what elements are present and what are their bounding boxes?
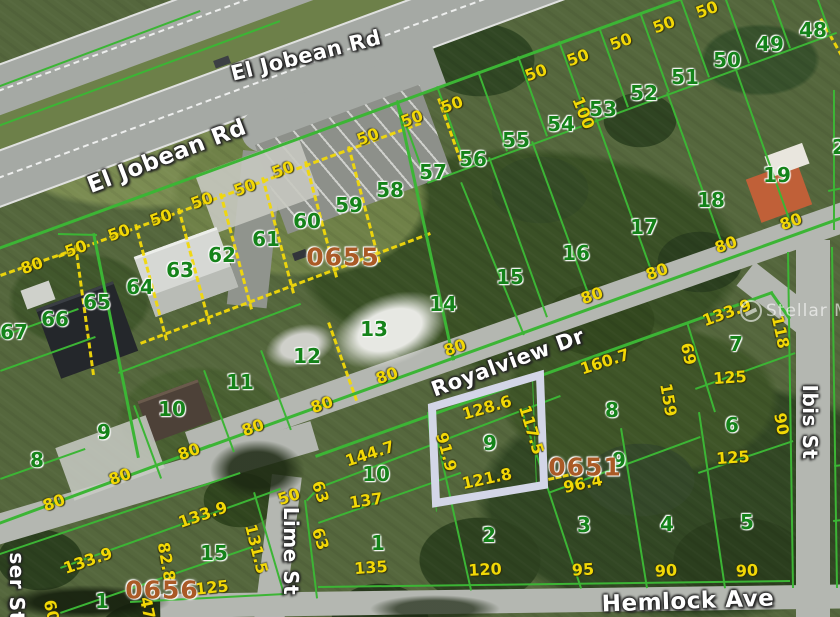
parcel-map-canvas[interactable]: 4849505152535455565758596061626364656667… (0, 0, 840, 617)
dimension-label: 80 (41, 492, 67, 515)
dimension-label: 120 (468, 561, 502, 579)
lot-number-label: 7 (729, 334, 743, 354)
dimension-label: 80 (374, 365, 400, 388)
dimension-label: 63 (309, 479, 331, 505)
dimension-label: 50 (63, 238, 89, 261)
lot-number-label: 14 (429, 294, 457, 314)
lot-number-label: 57 (419, 162, 447, 182)
lot-number-label: 66 (41, 309, 69, 329)
lot-number-label: 61 (252, 229, 280, 249)
dimension-label: 90 (654, 562, 677, 579)
dimension-label: 125 (195, 578, 230, 597)
lot-number-label: 50 (713, 50, 741, 70)
dimension-label: 95 (571, 561, 594, 578)
lot-number-label: 52 (630, 83, 658, 103)
lot-number-label: 19 (763, 165, 791, 185)
lot-number-label: 8 (605, 400, 619, 420)
dimension-label: 91.9 (433, 431, 459, 473)
lot-number-label: 2 (482, 525, 496, 545)
dimension-label: 80 (644, 261, 670, 284)
street-name-label: ser St (7, 552, 27, 617)
lot-number-label: 67 (0, 322, 28, 342)
dimension-label: 159 (657, 382, 679, 418)
block-number-label: 0655 (306, 245, 380, 270)
dimension-label: 50 (608, 31, 634, 54)
dimension-label: 50 (148, 207, 174, 230)
lot-number-label: 10 (158, 399, 186, 419)
lot-number-label: 18 (697, 190, 725, 210)
lot-number-label: 62 (208, 245, 236, 265)
dimension-label: 133.9 (176, 499, 229, 531)
dimension-label: 50 (439, 94, 465, 117)
lot-number-label: 1 (371, 533, 385, 553)
dimension-label: 50 (694, 0, 720, 21)
dimension-label: 60 (41, 598, 61, 617)
lot-number-label: 12 (293, 346, 321, 366)
dimension-label: 90 (735, 562, 758, 579)
dimension-label: 128.6 (460, 393, 513, 422)
lot-number-label: 60 (293, 211, 321, 231)
lot-number-label: 63 (166, 260, 194, 280)
watermark: Stellar MLS (740, 298, 840, 328)
lot-number-label: 54 (547, 114, 575, 134)
street-name-label: Ibis St (800, 385, 820, 460)
dimension-label: 125 (716, 449, 750, 467)
lot-number-label: 17 (630, 217, 658, 237)
dimension-label: 50 (106, 222, 132, 245)
dimension-label: 50 (232, 177, 258, 200)
lot-number-label: 58 (376, 180, 404, 200)
lot-number-label: 3 (577, 515, 591, 535)
lot-number-label: 1 (95, 591, 109, 611)
dimension-label: 80 (778, 211, 804, 234)
lot-number-label: 15 (496, 267, 524, 287)
lot-number-label: 9 (483, 433, 497, 453)
street-name-label: Lime St (281, 507, 301, 595)
dimension-label: 125 (713, 369, 747, 387)
block-number-label: 0651 (548, 455, 622, 480)
lot-number-label: 56 (459, 149, 487, 169)
dimension-label: 50 (565, 47, 591, 70)
dimension-label: 50 (355, 126, 381, 149)
dimension-label: 50 (651, 14, 677, 37)
dimension-label: 80 (240, 417, 266, 440)
dimension-label: 80 (19, 255, 45, 278)
map-labels-layer: 4849505152535455565758596061626364656667… (0, 0, 840, 617)
lot-number-label: 10 (362, 464, 390, 484)
dimension-label: 63 (309, 526, 331, 552)
lot-number-label: 16 (562, 243, 590, 263)
dimension-label: 69 (678, 341, 698, 366)
dimension-label: 131.5 (242, 523, 270, 576)
lot-number-label: 11 (226, 372, 254, 392)
dimension-label: 133.9 (61, 545, 114, 577)
dimension-label: 80 (309, 394, 335, 417)
lot-number-label: 15 (200, 543, 228, 563)
dimension-label: 50 (399, 108, 425, 131)
dimension-label: 80 (176, 441, 202, 464)
street-name-label: El Jobean Rd (229, 27, 384, 85)
lot-number-label: 64 (126, 277, 154, 297)
watermark-text: Stellar MLS (766, 301, 840, 321)
street-name-label: Hemlock Ave (601, 587, 774, 616)
dimension-label: 80 (107, 466, 133, 489)
dimension-label: 160.7 (578, 347, 631, 378)
dimension-label: 50 (523, 62, 549, 85)
block-number-label: 0656 (125, 578, 199, 603)
dimension-label: 137 (348, 491, 383, 511)
dimension-label: 135 (354, 559, 388, 577)
lot-number-label: 59 (335, 195, 363, 215)
dimension-label: 80 (713, 234, 739, 257)
lot-number-label: 6 (725, 415, 739, 435)
stellar-mls-logo-icon (740, 300, 762, 322)
lot-number-label: 8 (30, 450, 44, 470)
dimension-label: 50 (189, 190, 215, 213)
lot-number-label: 4 (660, 514, 674, 534)
lot-number-label: 9 (97, 422, 111, 442)
lot-number-label: 55 (502, 130, 530, 150)
lot-number-label: 5 (740, 512, 754, 532)
lot-number-label: 2 (832, 137, 840, 157)
dimension-label: 80 (442, 337, 468, 360)
lot-number-label: 65 (83, 292, 111, 312)
dimension-label: 90 (771, 412, 791, 437)
street-name-label: El Jobean Rd (84, 116, 249, 198)
lot-number-label: 51 (671, 67, 699, 87)
street-name-label: Royalview Dr (429, 326, 588, 401)
lot-number-label: 13 (360, 319, 388, 339)
lot-number-label: 48 (799, 20, 827, 40)
dimension-label: 50 (270, 159, 296, 182)
dimension-label: 121.8 (461, 466, 514, 492)
dimension-label: 80 (579, 285, 605, 308)
dimension-label: 50 (276, 486, 302, 508)
lot-number-label: 49 (756, 34, 784, 54)
dimension-label: 117.5 (516, 403, 546, 456)
